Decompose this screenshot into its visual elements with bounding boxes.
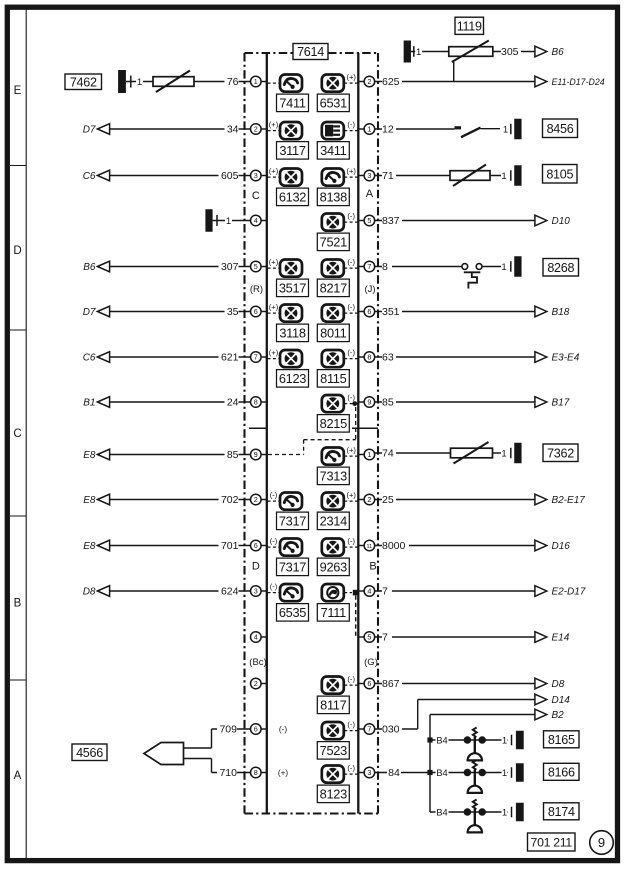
svg-text:D7: D7 (83, 307, 96, 318)
svg-text:7: 7 (254, 353, 258, 362)
svg-text:E8: E8 (83, 541, 96, 552)
svg-text:867: 867 (382, 678, 400, 690)
svg-text:B: B (14, 598, 22, 610)
svg-text:709: 709 (219, 724, 237, 736)
svg-text:7614: 7614 (297, 45, 324, 59)
svg-text:D: D (13, 245, 21, 257)
svg-text:7313: 7313 (320, 469, 347, 484)
svg-text:74: 74 (382, 448, 394, 460)
svg-text:(-): (-) (270, 582, 278, 591)
svg-text:2: 2 (254, 495, 258, 504)
svg-text:6: 6 (254, 725, 258, 734)
svg-text:3: 3 (254, 171, 258, 180)
svg-text:8117: 8117 (320, 698, 347, 713)
svg-text:(-): (-) (279, 725, 287, 734)
svg-text:1: 1 (137, 77, 142, 88)
svg-text:1: 1 (502, 807, 507, 818)
svg-text:1: 1 (226, 216, 231, 227)
svg-text:(+): (+) (346, 167, 356, 176)
svg-text:6: 6 (254, 541, 258, 550)
svg-text:(+): (+) (269, 258, 279, 267)
svg-text:7: 7 (382, 586, 388, 598)
svg-text:8165: 8165 (548, 733, 575, 747)
svg-text:1: 1 (501, 171, 506, 182)
svg-text:B4: B4 (436, 768, 447, 778)
svg-text:D: D (252, 561, 260, 573)
svg-text:8268: 8268 (547, 261, 574, 275)
svg-text:8217: 8217 (320, 281, 347, 296)
svg-text:(+): (+) (346, 491, 356, 500)
svg-text:(R): (R) (250, 284, 263, 295)
svg-text:E8: E8 (83, 450, 96, 461)
svg-text:3: 3 (367, 768, 371, 777)
svg-text:6123: 6123 (279, 371, 306, 386)
svg-text:8000: 8000 (382, 540, 406, 552)
svg-text:8123: 8123 (320, 787, 347, 802)
svg-text:7317: 7317 (279, 560, 306, 575)
svg-text:7521: 7521 (320, 235, 347, 250)
svg-text:D8: D8 (552, 679, 565, 690)
svg-text:(+): (+) (269, 167, 279, 176)
svg-text:E3-E4: E3-E4 (552, 352, 580, 363)
svg-text:84: 84 (388, 767, 400, 779)
svg-text:6: 6 (367, 307, 371, 316)
svg-text:8215: 8215 (320, 416, 347, 431)
svg-text:2: 2 (254, 125, 258, 134)
svg-text:1119: 1119 (457, 19, 482, 33)
svg-text:85: 85 (227, 449, 239, 461)
svg-text:2: 2 (367, 495, 371, 504)
svg-text:4: 4 (254, 633, 258, 642)
svg-text:3117: 3117 (279, 143, 306, 158)
svg-text:4: 4 (367, 586, 371, 595)
svg-text:(+): (+) (269, 303, 279, 312)
svg-text:(+): (+) (346, 446, 356, 455)
svg-text:2314: 2314 (320, 514, 347, 529)
svg-text:030: 030 (382, 724, 400, 736)
svg-text:D10: D10 (552, 216, 571, 227)
svg-text:E: E (14, 85, 22, 97)
svg-text:1: 1 (367, 124, 371, 133)
svg-text:9: 9 (367, 397, 371, 406)
svg-text:7362: 7362 (547, 446, 574, 460)
svg-text:7: 7 (367, 262, 371, 271)
svg-text:B6: B6 (83, 262, 96, 273)
svg-text:(-): (-) (347, 675, 355, 684)
svg-text:B6: B6 (552, 47, 565, 58)
svg-text:B2-E17: B2-E17 (552, 495, 586, 506)
svg-text:1: 1 (502, 768, 507, 779)
svg-text:8115: 8115 (320, 371, 347, 386)
svg-text:5: 5 (254, 262, 258, 271)
svg-text:2: 2 (254, 679, 258, 688)
svg-text:B4: B4 (436, 807, 447, 817)
svg-text:4566: 4566 (76, 746, 103, 760)
svg-text:624: 624 (221, 586, 239, 598)
svg-text:34: 34 (227, 124, 239, 136)
svg-text:9: 9 (254, 450, 258, 459)
svg-text:C: C (252, 190, 260, 202)
svg-text:8: 8 (254, 398, 258, 407)
svg-text:B18: B18 (552, 307, 570, 318)
svg-text:605: 605 (221, 170, 239, 182)
svg-text:A: A (366, 188, 374, 200)
svg-text:(-): (-) (347, 120, 355, 129)
svg-text:4: 4 (254, 216, 258, 225)
svg-text:2: 2 (367, 77, 371, 86)
svg-text:(-): (-) (270, 537, 278, 546)
svg-text:76: 76 (227, 76, 239, 88)
svg-text:(-): (-) (347, 303, 355, 312)
svg-text:8: 8 (382, 261, 388, 273)
svg-text:63: 63 (382, 352, 394, 364)
svg-text:C6: C6 (83, 352, 96, 363)
svg-text:E8: E8 (83, 495, 96, 506)
svg-text:(+): (+) (269, 120, 279, 129)
svg-text:(J): (J) (364, 284, 375, 295)
svg-text:(-): (-) (347, 348, 355, 357)
svg-text:1: 1 (501, 262, 506, 273)
svg-text:C6: C6 (83, 171, 96, 182)
svg-text:71: 71 (382, 170, 394, 182)
svg-text:(+): (+) (269, 348, 279, 357)
svg-text:351: 351 (382, 306, 400, 318)
svg-text:(-): (-) (347, 720, 355, 729)
svg-text:E2-D17: E2-D17 (552, 586, 586, 597)
svg-text:3411: 3411 (320, 143, 347, 158)
svg-text:A: A (14, 770, 22, 782)
svg-text:8011: 8011 (320, 326, 347, 341)
svg-text:8: 8 (367, 352, 371, 361)
svg-text:5: 5 (367, 632, 371, 641)
svg-text:C: C (13, 428, 21, 440)
svg-text:7523: 7523 (320, 743, 347, 758)
svg-text:305: 305 (501, 46, 519, 58)
svg-text:837: 837 (382, 215, 400, 227)
svg-text:701: 701 (221, 540, 239, 552)
svg-text:701 211: 701 211 (531, 835, 573, 849)
svg-text:D16: D16 (552, 541, 571, 552)
svg-text:1: 1 (503, 124, 508, 135)
svg-text:7411: 7411 (279, 96, 306, 111)
svg-text:307: 307 (221, 261, 239, 273)
svg-text:E14: E14 (552, 632, 570, 643)
svg-text:3517: 3517 (279, 281, 306, 296)
svg-text:1: 1 (367, 450, 371, 459)
svg-text:6535: 6535 (279, 605, 306, 620)
svg-text:3: 3 (254, 587, 258, 596)
svg-text:(-): (-) (347, 537, 355, 546)
svg-text:8456: 8456 (547, 122, 574, 136)
svg-text:12: 12 (382, 124, 394, 136)
svg-text:1: 1 (501, 448, 506, 459)
svg-text:5: 5 (367, 216, 371, 225)
svg-text:710: 710 (219, 767, 237, 779)
svg-text:D7: D7 (83, 124, 96, 135)
svg-text:702: 702 (221, 494, 239, 506)
svg-text:B17: B17 (552, 397, 570, 408)
svg-text:25: 25 (382, 494, 394, 506)
svg-text:D14: D14 (552, 695, 571, 706)
svg-text:8105: 8105 (546, 167, 573, 181)
svg-text:9: 9 (598, 835, 605, 850)
svg-text:8138: 8138 (320, 190, 347, 205)
svg-text:24: 24 (227, 397, 239, 409)
svg-text:B: B (369, 561, 376, 573)
svg-text:7462: 7462 (70, 75, 97, 89)
svg-text:B1: B1 (83, 397, 95, 408)
svg-text:7111: 7111 (321, 605, 347, 620)
svg-text:(-): (-) (347, 258, 355, 267)
svg-text:6132: 6132 (279, 190, 306, 205)
svg-text:B4: B4 (436, 735, 447, 745)
svg-text:8174: 8174 (548, 805, 575, 819)
svg-text:8: 8 (254, 768, 258, 777)
svg-text:(-): (-) (347, 764, 355, 773)
svg-text:(-): (-) (347, 212, 355, 221)
svg-text:(-): (-) (347, 393, 355, 402)
svg-text:(+): (+) (346, 73, 356, 82)
svg-text:B2: B2 (552, 710, 565, 721)
svg-text:3118: 3118 (279, 326, 306, 341)
svg-text:(Bc): (Bc) (249, 657, 266, 668)
svg-text:(+): (+) (278, 769, 289, 778)
svg-text:1: 1 (416, 47, 421, 58)
svg-text:1: 1 (254, 77, 258, 86)
svg-text:9263: 9263 (320, 560, 347, 575)
svg-text:7317: 7317 (279, 514, 306, 529)
svg-text:6: 6 (254, 307, 258, 316)
svg-text:8166: 8166 (548, 765, 575, 779)
svg-text:35: 35 (227, 306, 239, 318)
svg-text:85: 85 (382, 397, 394, 409)
svg-text:D8: D8 (83, 586, 96, 597)
svg-text:1: 1 (502, 735, 507, 746)
svg-text:7: 7 (382, 632, 388, 644)
svg-text:(G): (G) (364, 657, 378, 668)
svg-text:625: 625 (382, 76, 400, 88)
svg-text:3: 3 (367, 171, 371, 180)
svg-text:6: 6 (367, 679, 371, 688)
svg-text:621: 621 (221, 352, 239, 364)
svg-text:6531: 6531 (320, 96, 347, 111)
svg-text:(-): (-) (270, 491, 278, 500)
svg-text:7: 7 (367, 724, 371, 733)
svg-text:11: 11 (367, 544, 373, 550)
svg-text:E11-D17-D24: E11-D17-D24 (552, 77, 605, 87)
